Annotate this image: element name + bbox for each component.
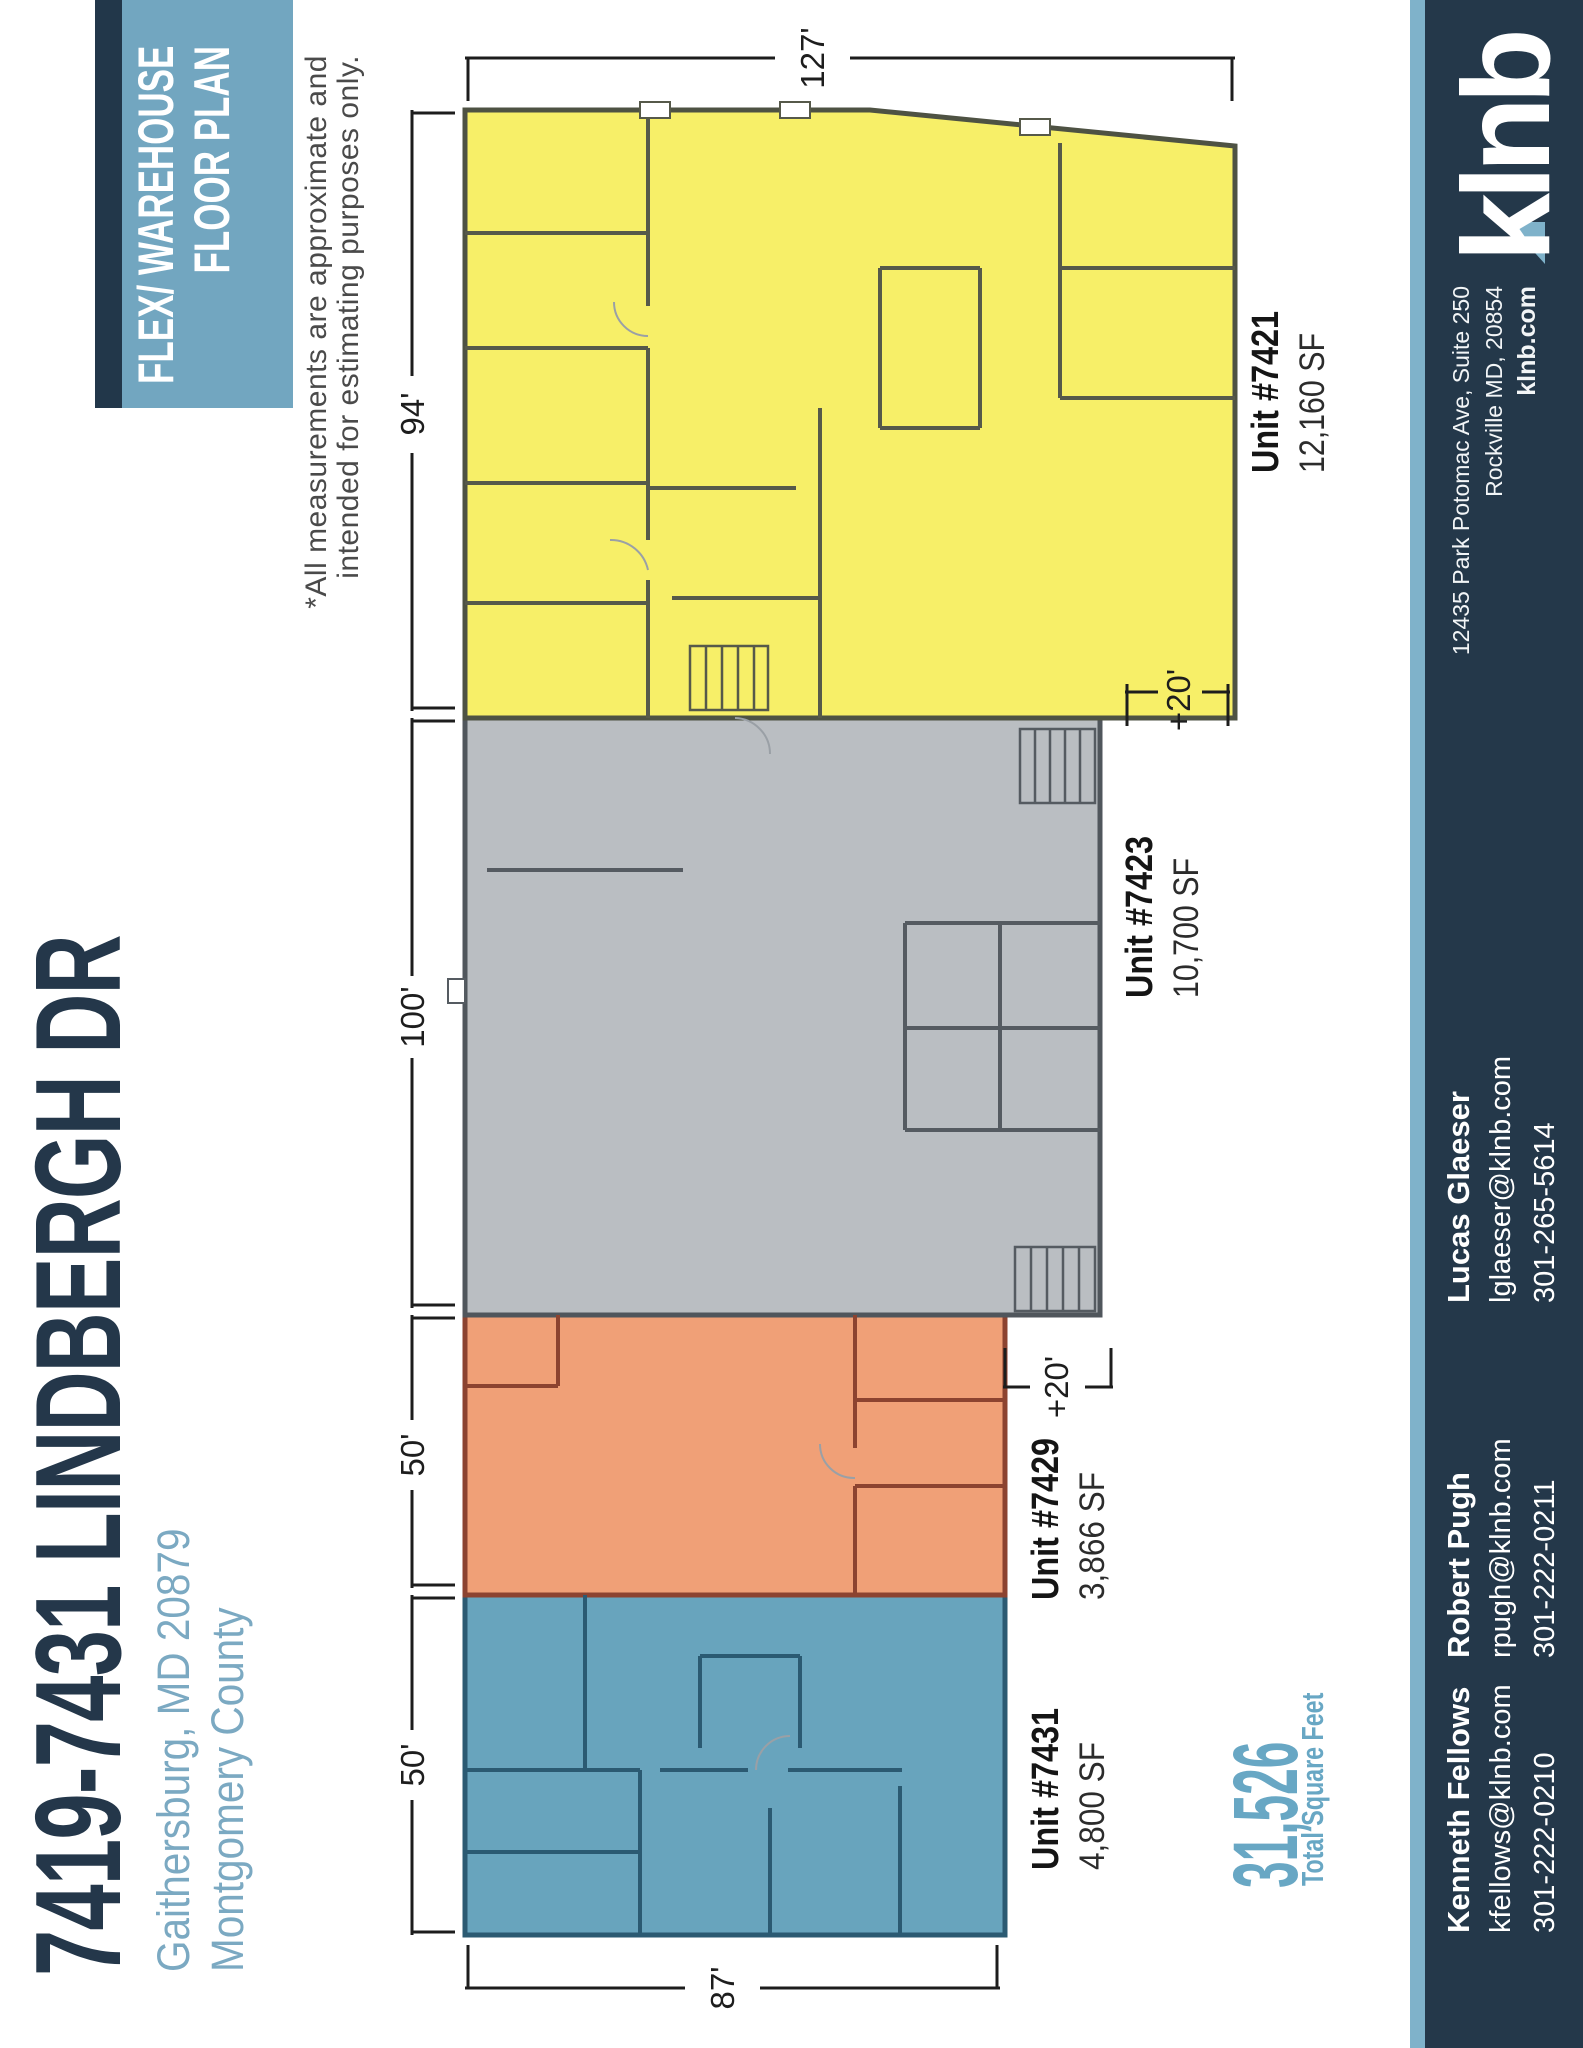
dim-width-7421: 94' <box>394 392 431 435</box>
flyer-landscape-sheet: 50' 50' 100' 94' 87' 127' +20' +20 <box>0 0 1583 2048</box>
dim-width-7423: 100' <box>394 986 431 1047</box>
banner-dark-strip <box>95 0 122 408</box>
dim-width-7431: 50' <box>394 1743 431 1786</box>
contact-robert-pugh: Robert Pugh rpugh@klnb.com 301-222-0211 <box>1439 1438 1567 1658</box>
klnb-logo: klnb <box>1433 16 1583 266</box>
location-county: Montgomery County <box>202 1607 254 1972</box>
dim-ext-gray: +20' <box>1038 1356 1075 1418</box>
scanned-flyer-page: 50' 50' 100' 94' 87' 127' +20' +20 <box>0 0 1583 2048</box>
unit-7429-label: Unit #7429 <box>1025 1438 1067 1600</box>
contact-kenneth-fellows: Kenneth Fellows kfellows@klnb.com 301-22… <box>1439 1684 1567 1933</box>
brand-website: klnb.com <box>1511 286 1544 655</box>
brand-address-block: 12435 Park Potomac Ave, Suite 250 Rockvi… <box>1445 286 1544 655</box>
contact-phone: 301-265-5614 <box>1523 1056 1567 1303</box>
location-city: Gaithersburg, MD 20879 <box>148 1529 200 1972</box>
unit-7429-size: 3,866 SF <box>1073 1472 1112 1600</box>
right-dimension-line <box>465 58 1235 101</box>
dim-ext-yellow: +20' <box>1160 669 1197 731</box>
contact-name: Kenneth Fellows <box>1439 1684 1479 1933</box>
contact-email: kfellows@klnb.com <box>1479 1684 1523 1933</box>
unit-7423-label: Unit #7423 <box>1119 836 1161 998</box>
unit-7421-size: 12,160 SF <box>1293 333 1332 473</box>
dim-depth-7431: 87' <box>704 1966 741 2009</box>
klnb-logo-text: klnb <box>1438 33 1576 262</box>
footer-bar: Kenneth Fellows kfellows@klnb.com 301-22… <box>1425 0 1583 2048</box>
brand-address-line1: 12435 Park Potomac Ave, Suite 250 <box>1445 286 1478 655</box>
contact-email: lglaeser@klnb.com <box>1479 1056 1523 1303</box>
unit-7421-region <box>465 110 1235 718</box>
disclaimer-line2: intended for estimating purposes only. <box>332 55 366 579</box>
footer-accent-stripe <box>1410 0 1425 2048</box>
contact-name: Lucas Glaeser <box>1439 1056 1479 1303</box>
contact-name: Robert Pugh <box>1439 1438 1479 1658</box>
total-square-feet-label: Total Square Feet <box>1295 1693 1331 1886</box>
dim-width-7429: 50' <box>394 1433 431 1476</box>
dim-depth-7421: 127' <box>794 27 831 88</box>
banner-line1: FLEX/ WAREHOUSE <box>127 46 185 384</box>
unit-7431-label: Unit #7431 <box>1025 1708 1067 1870</box>
banner-ribbon: FLEX/ WAREHOUSE FLOOR PLAN <box>95 0 293 408</box>
brand-address-line2: Rockville MD, 20854 <box>1478 286 1511 655</box>
contact-lucas-glaeser: Lucas Glaeser lglaeser@klnb.com 301-265-… <box>1439 1056 1567 1303</box>
unit-7423-size: 10,700 SF <box>1167 858 1206 998</box>
unit-7421-label: Unit #7421 <box>1245 311 1287 473</box>
unit-7431-region <box>465 1595 1005 1935</box>
banner-line2: FLOOR PLAN <box>183 46 241 273</box>
contact-phone: 301-222-0211 <box>1523 1438 1567 1658</box>
contact-email: rpugh@klnb.com <box>1479 1438 1523 1658</box>
contact-phone: 301-222-0210 <box>1523 1684 1567 1933</box>
disclaimer-line1: *All measurements are approximate and <box>300 55 334 609</box>
unit-7423-region <box>465 718 1100 1315</box>
unit-7429-region <box>465 1315 1005 1595</box>
page-title: 7419-7431 LINDBERGH DR <box>8 935 148 1976</box>
unit-7431-size: 4,800 SF <box>1073 1742 1112 1870</box>
